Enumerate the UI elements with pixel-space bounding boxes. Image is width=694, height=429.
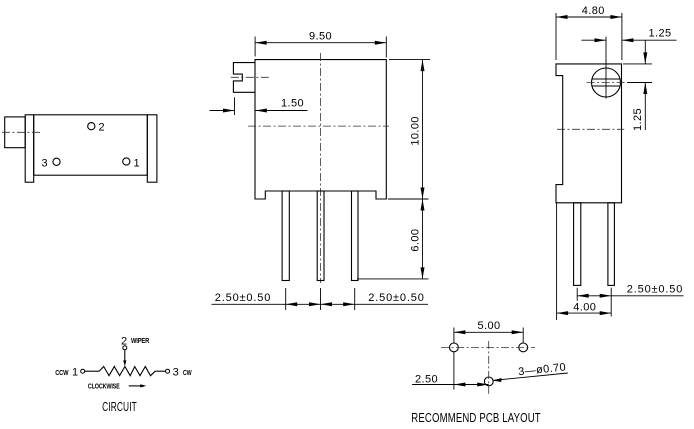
svg-text:RECOMMEND PCB LAYOUT: RECOMMEND PCB LAYOUT: [411, 411, 541, 425]
svg-text:6.00: 6.00: [409, 229, 421, 252]
svg-text:4.00: 4.00: [573, 301, 596, 313]
svg-text:2: 2: [99, 122, 106, 134]
svg-text:2.50: 2.50: [415, 374, 438, 386]
svg-text:3: 3: [41, 157, 48, 169]
svg-text:2.50±0.50: 2.50±0.50: [627, 283, 684, 295]
svg-text:WIPER: WIPER: [131, 336, 150, 345]
svg-text:CIRCUIT: CIRCUIT: [102, 400, 137, 414]
svg-text:2.50±0.50: 2.50±0.50: [215, 292, 272, 304]
svg-text:CCW: CCW: [55, 368, 69, 377]
svg-text:10.00: 10.00: [410, 116, 422, 146]
svg-text:1.25: 1.25: [632, 108, 644, 131]
svg-text:9.50: 9.50: [309, 31, 332, 43]
svg-text:CLOCKWISE: CLOCKWISE: [88, 382, 120, 391]
svg-text:1.25: 1.25: [648, 28, 671, 40]
svg-text:3: 3: [173, 367, 180, 379]
svg-text:1: 1: [134, 157, 141, 169]
svg-text:2.50±0.50: 2.50±0.50: [368, 292, 425, 304]
svg-text:2: 2: [121, 336, 128, 348]
svg-text:1.50: 1.50: [281, 98, 304, 110]
svg-text:CW: CW: [183, 368, 192, 377]
svg-text:4.80: 4.80: [582, 5, 605, 17]
svg-text:1: 1: [72, 367, 79, 379]
svg-text:5.00: 5.00: [477, 320, 500, 332]
